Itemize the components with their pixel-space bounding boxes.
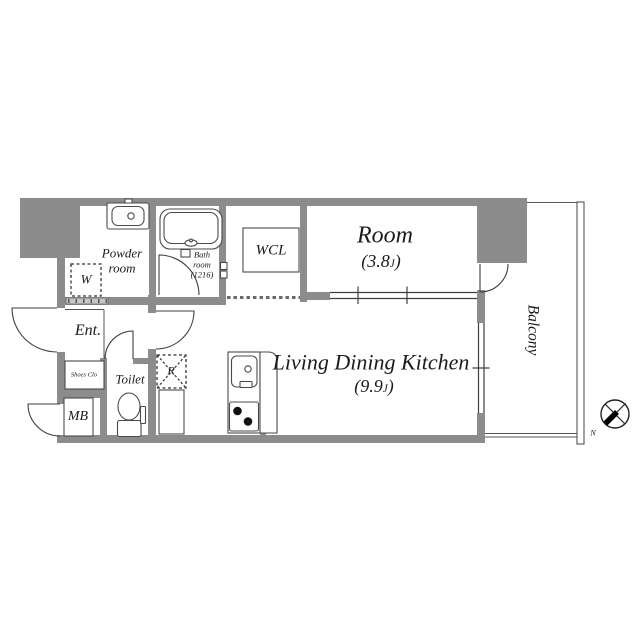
ldk-balcony-window — [473, 323, 490, 413]
wall-left-mid — [57, 352, 65, 404]
windows — [330, 287, 490, 414]
floor-plan-drawing — [0, 0, 640, 640]
wall-toilet-north — [133, 358, 156, 364]
bath-label-icon — [181, 250, 190, 258]
meter-box — [64, 398, 93, 436]
ldk-door — [156, 311, 194, 349]
toilet-door — [105, 331, 133, 359]
wall-powder-bath — [149, 206, 156, 298]
kitchen-sink-icon — [232, 356, 258, 388]
wall-room-south-stub — [303, 292, 330, 300]
room-ldk-partition-window — [330, 287, 477, 305]
wall-east-upper — [477, 290, 485, 323]
refrigerator-space-box — [157, 355, 186, 388]
balcony-door — [480, 264, 508, 292]
wcl-shelf — [243, 228, 299, 272]
meter-box-door — [28, 404, 60, 436]
wall-wcl-room — [300, 206, 307, 302]
bathtub-icon — [160, 209, 222, 249]
shoes-closet-box — [65, 361, 104, 389]
vanity-sink-icon — [107, 199, 149, 229]
entry-door — [12, 308, 57, 352]
fixtures — [64, 199, 299, 437]
compass-icon — [601, 400, 629, 428]
floor-plan: Powder room Bath room (1216) WCL Room (3… — [0, 0, 640, 640]
washer-space-box — [71, 264, 101, 296]
stove-icon — [230, 402, 259, 431]
powder-sliding-door — [66, 298, 108, 304]
wall-corner-block — [20, 198, 80, 258]
kitchen-storage-box — [159, 390, 184, 434]
wall-east-lower — [477, 413, 485, 439]
wall-top — [20, 198, 480, 206]
bath-door — [159, 255, 199, 295]
wall-pillar — [477, 198, 527, 263]
toilet-icon — [118, 393, 146, 437]
entrance-step-lines — [65, 310, 104, 359]
